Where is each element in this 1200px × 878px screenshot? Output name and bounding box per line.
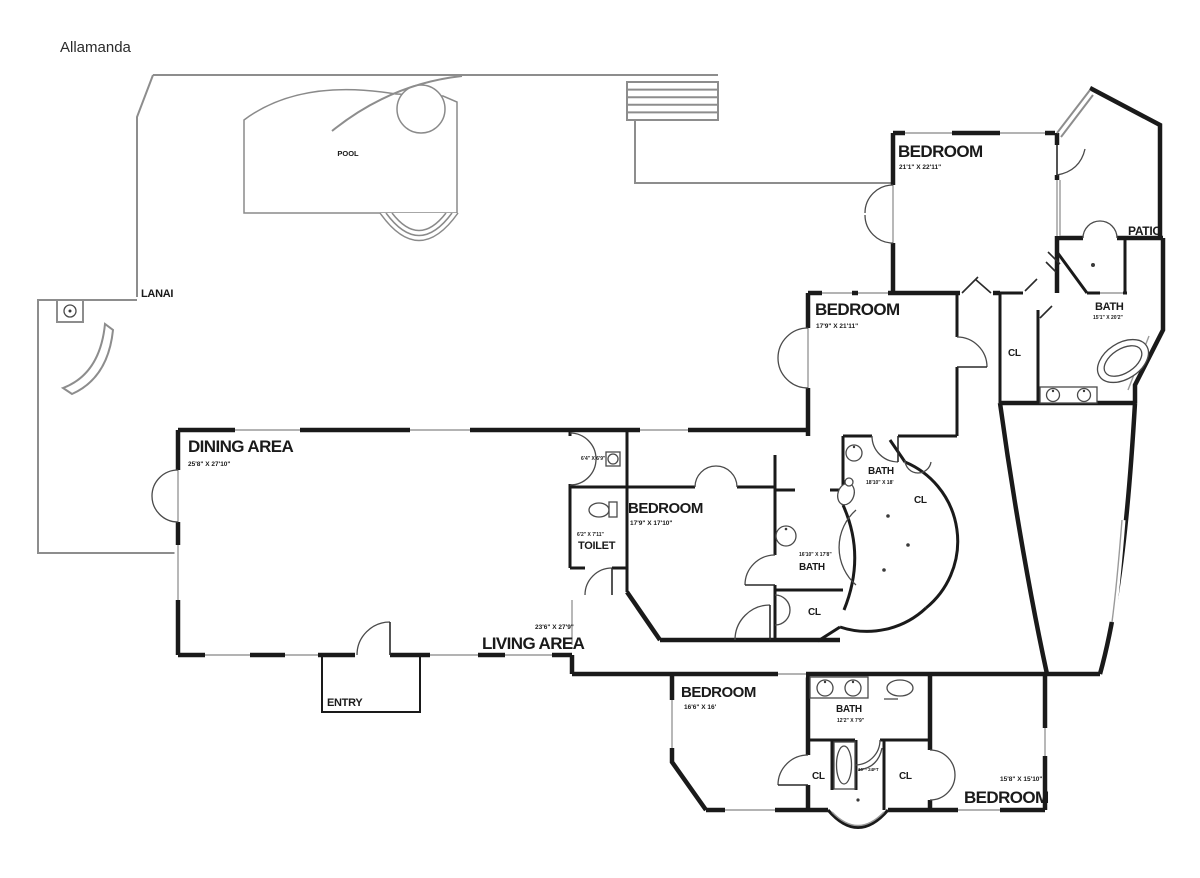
bath-w-sink <box>776 526 796 546</box>
rotunda-dot-3 <box>906 543 910 547</box>
pool <box>244 76 462 241</box>
label-patio: PATIO <box>1128 224 1161 238</box>
label-tub-note: 10' - 24FT <box>858 767 879 772</box>
dims-toilet: 6'2" X 7'11" <box>577 532 604 538</box>
dims-bath-master: 15'1" X 20'2" <box>1093 315 1124 321</box>
label-lanai: LANAI <box>141 288 173 300</box>
label-dining: DINING AREA <box>188 437 293 456</box>
shower-head-dot <box>1091 263 1095 267</box>
doors <box>152 145 1117 800</box>
floor-plan-drawing: Allamanda POOL LANAI BEDROOM 21'1" X 22'… <box>0 0 1200 878</box>
label-toilet: TOILET <box>578 540 616 552</box>
dims-bedroom-ne: 21'1" X 22'11" <box>899 164 941 171</box>
lanai-planter-curve <box>63 324 113 394</box>
label-pool: POOL <box>337 149 359 158</box>
label-bedroom-e: BEDROOM <box>815 300 900 319</box>
dims-bedroom-e: 17'9" X 21'11" <box>816 323 858 330</box>
dims-living: 23'6" X 27'9" <box>535 624 574 631</box>
windows <box>178 133 1149 826</box>
master-vanity <box>1040 387 1097 403</box>
bath-s-toilet <box>884 680 913 699</box>
corner-slider <box>1057 90 1093 137</box>
labels: Allamanda POOL LANAI BEDROOM 21'1" X 22'… <box>60 39 1161 807</box>
spa-circle <box>397 85 445 133</box>
label-bedroom-se: BEDROOM <box>964 788 1049 807</box>
label-bath-s: BATH <box>836 704 862 715</box>
south-tub <box>834 742 855 789</box>
corridor-inner-curve <box>1000 403 1047 674</box>
label-bath-n: BATH <box>868 466 894 477</box>
master-tub <box>1090 331 1157 392</box>
toilet-room-toilet <box>589 502 617 517</box>
dims-dining: 25'8" X 27'10" <box>188 461 231 468</box>
label-living: LIVING AREA <box>482 634 585 653</box>
label-closet-se: CL <box>899 771 912 782</box>
stairs <box>627 82 718 120</box>
dims-bedroom-c: 17'9" X 17'10" <box>630 520 673 527</box>
alcove-dot <box>856 798 859 801</box>
dims-bedroom-s: 16'6" X 16' <box>684 704 717 711</box>
label-closet-s: CL <box>808 607 821 618</box>
label-bedroom-ne: BEDROOM <box>898 142 983 161</box>
bath-n-toilet <box>835 478 857 507</box>
storage-sink <box>606 452 620 466</box>
label-entry: ENTRY <box>327 697 363 709</box>
dims-bath-n: 18'10" X 18' <box>866 480 894 486</box>
label-closet-e: CL <box>914 495 927 506</box>
dims-storage: 6'4" X 6'9" <box>581 456 606 462</box>
label-closet-master: CL <box>1008 348 1021 359</box>
floor-plan-page: Allamanda POOL LANAI BEDROOM 21'1" X 22'… <box>0 0 1200 878</box>
label-closet-sw: CL <box>812 771 825 782</box>
plan-title: Allamanda <box>60 39 132 56</box>
dims-bath-s: 12'2" X 7'9" <box>837 718 865 724</box>
bath-s-vanity <box>810 677 868 698</box>
label-bath-w: BATH <box>799 562 825 573</box>
label-bedroom-s: BEDROOM <box>681 684 756 701</box>
bath-n-sink <box>846 445 862 461</box>
label-bedroom-c: BEDROOM <box>628 500 703 517</box>
dims-bath-w: 16'10" X 17'8" <box>799 552 832 558</box>
label-bath-master: BATH <box>1095 301 1124 313</box>
rotunda-dot-2 <box>882 568 886 572</box>
lanai-deck-outline <box>38 75 893 553</box>
rotunda-dot-1 <box>886 514 890 518</box>
dims-bedroom-se: 15'8" X 15'10" <box>1000 776 1043 783</box>
